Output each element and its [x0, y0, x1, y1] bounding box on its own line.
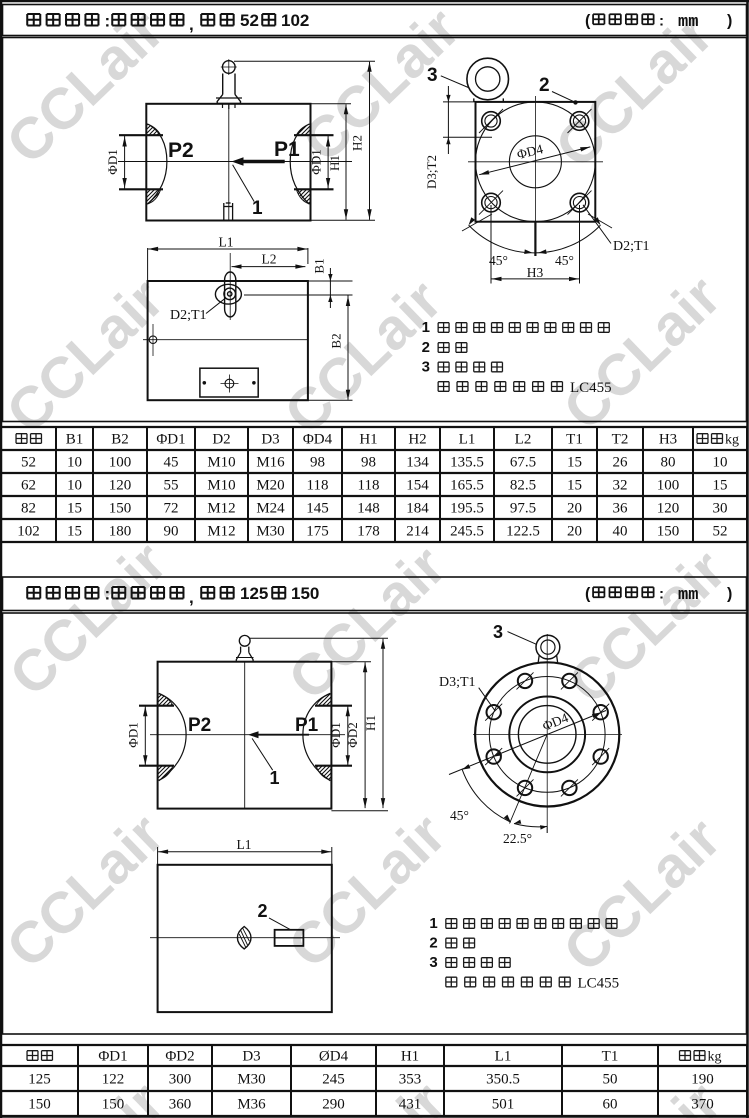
svg-text:L1: L1 — [459, 432, 476, 448]
svg-text:P1: P1 — [295, 715, 319, 736]
svg-text:P2: P2 — [168, 139, 194, 162]
svg-text:15: 15 — [67, 501, 82, 517]
svg-text:20: 20 — [567, 524, 582, 540]
svg-text:B1: B1 — [66, 432, 84, 448]
svg-text:82.5: 82.5 — [510, 478, 536, 494]
svg-text:(: ( — [585, 13, 591, 30]
svg-text:150: 150 — [291, 584, 319, 603]
svg-text:3: 3 — [429, 954, 437, 971]
svg-text:kg: kg — [708, 1050, 722, 1065]
svg-text:L1: L1 — [495, 1049, 512, 1065]
svg-text:T2: T2 — [612, 432, 629, 448]
svg-text:H1: H1 — [359, 432, 377, 448]
svg-text:350.5: 350.5 — [486, 1072, 520, 1088]
svg-text:120: 120 — [109, 478, 132, 494]
svg-text:M16: M16 — [256, 455, 285, 471]
svg-text:125: 125 — [240, 584, 268, 603]
svg-text:P2: P2 — [188, 715, 211, 736]
svg-text:135.5: 135.5 — [450, 455, 484, 471]
svg-text::: : — [659, 13, 664, 30]
svg-text:B2: B2 — [111, 432, 129, 448]
svg-text:H1: H1 — [327, 155, 342, 171]
svg-text:ΦD4: ΦD4 — [303, 432, 333, 448]
svg-text:D3: D3 — [242, 1049, 260, 1065]
svg-text::: : — [105, 585, 111, 604]
svg-text:150: 150 — [28, 1097, 51, 1113]
svg-text:67.5: 67.5 — [510, 455, 536, 471]
svg-text:15: 15 — [567, 455, 582, 471]
svg-text:H2: H2 — [408, 432, 426, 448]
svg-text:30: 30 — [713, 501, 728, 517]
svg-text:45°: 45° — [450, 808, 469, 823]
svg-text:36: 36 — [613, 501, 629, 517]
svg-text:ΦD1: ΦD1 — [156, 432, 185, 448]
svg-text:60: 60 — [603, 1097, 618, 1113]
svg-text:15: 15 — [67, 524, 82, 540]
svg-text:M10: M10 — [207, 455, 235, 471]
svg-text:80: 80 — [661, 455, 676, 471]
svg-text:175: 175 — [306, 524, 329, 540]
svg-text:M24: M24 — [256, 501, 285, 517]
svg-text:L2: L2 — [515, 432, 532, 448]
svg-text:L2: L2 — [262, 252, 277, 267]
svg-text:62: 62 — [21, 478, 36, 494]
svg-text:102: 102 — [281, 11, 309, 30]
svg-text:1: 1 — [252, 198, 263, 219]
svg-text:55: 55 — [164, 478, 179, 494]
svg-text:431: 431 — [399, 1097, 422, 1113]
svg-text:145: 145 — [306, 501, 329, 517]
svg-text:mm: mm — [678, 586, 698, 605]
svg-text:1: 1 — [422, 319, 430, 336]
svg-text:122.5: 122.5 — [506, 524, 540, 540]
svg-text:H2: H2 — [350, 135, 365, 151]
svg-text:mm: mm — [678, 13, 698, 32]
svg-text:3: 3 — [422, 359, 430, 376]
svg-text:45°: 45° — [489, 253, 508, 268]
svg-text:214: 214 — [406, 524, 429, 540]
svg-text:10: 10 — [67, 478, 82, 494]
svg-text:32: 32 — [613, 478, 628, 494]
svg-text:148: 148 — [357, 501, 380, 517]
svg-text:178: 178 — [357, 524, 380, 540]
svg-text:72: 72 — [164, 501, 179, 517]
svg-text:10: 10 — [67, 455, 82, 471]
svg-text:LC455: LC455 — [570, 380, 612, 396]
svg-text:20: 20 — [567, 501, 582, 517]
svg-text:L1: L1 — [219, 235, 234, 250]
svg-text:52: 52 — [713, 524, 728, 540]
svg-text:290: 290 — [322, 1097, 345, 1113]
svg-text:ΦD2: ΦD2 — [165, 1049, 194, 1065]
svg-text:M36: M36 — [237, 1097, 266, 1113]
svg-text:98: 98 — [310, 455, 325, 471]
svg-text:M12: M12 — [207, 501, 235, 517]
svg-text:D3;T2: D3;T2 — [424, 155, 439, 189]
svg-text:ΦD1: ΦD1 — [98, 1049, 127, 1065]
svg-text:ΦD1: ΦD1 — [126, 722, 141, 747]
svg-text:82: 82 — [21, 501, 36, 517]
svg-text:150: 150 — [657, 524, 680, 540]
svg-text:ΦD1: ΦD1 — [105, 149, 120, 174]
svg-text:100: 100 — [657, 478, 680, 494]
svg-text:H1: H1 — [363, 715, 378, 731]
svg-text:353: 353 — [399, 1072, 422, 1088]
svg-text:180: 180 — [109, 524, 132, 540]
svg-text:300: 300 — [169, 1072, 192, 1088]
svg-text:,: , — [189, 15, 194, 34]
svg-text:118: 118 — [358, 478, 380, 494]
svg-text:26: 26 — [613, 455, 629, 471]
svg-text:D3: D3 — [261, 432, 279, 448]
svg-text:52: 52 — [240, 11, 259, 30]
svg-text:,: , — [189, 588, 194, 607]
svg-text:M30: M30 — [256, 524, 284, 540]
svg-text:D2: D2 — [212, 432, 230, 448]
svg-text:D3;T1: D3;T1 — [439, 675, 476, 690]
svg-text:3: 3 — [427, 65, 438, 86]
svg-text:3: 3 — [493, 622, 503, 642]
svg-text:118: 118 — [307, 478, 329, 494]
svg-text:P1: P1 — [274, 138, 300, 161]
svg-text:1: 1 — [270, 768, 280, 788]
svg-text:H1: H1 — [401, 1049, 419, 1065]
svg-text:134: 134 — [406, 455, 429, 471]
svg-text:L1: L1 — [237, 837, 252, 852]
svg-text:360: 360 — [169, 1097, 192, 1113]
svg-text:ØD4: ØD4 — [319, 1049, 349, 1065]
svg-text:T1: T1 — [602, 1049, 619, 1065]
svg-text:1: 1 — [429, 915, 437, 932]
svg-text:501: 501 — [492, 1097, 515, 1113]
svg-text:125: 125 — [28, 1072, 51, 1088]
svg-text:2: 2 — [539, 75, 550, 96]
svg-text:ΦD1: ΦD1 — [328, 722, 343, 747]
svg-text:M20: M20 — [256, 478, 284, 494]
svg-text:195.5: 195.5 — [450, 501, 484, 517]
svg-text:150: 150 — [102, 1097, 125, 1113]
svg-text:T1: T1 — [566, 432, 583, 448]
svg-text:ΦD2: ΦD2 — [345, 722, 360, 747]
svg-text:150: 150 — [109, 501, 132, 517]
svg-text:184: 184 — [406, 501, 429, 517]
svg-text:2: 2 — [422, 339, 430, 356]
svg-text:ΦD1: ΦD1 — [309, 149, 324, 174]
svg-text:LC455: LC455 — [578, 976, 620, 992]
svg-text:15: 15 — [567, 478, 582, 494]
svg-text:(: ( — [585, 586, 591, 603]
svg-text:D2;T1: D2;T1 — [613, 239, 650, 254]
svg-text:98: 98 — [361, 455, 376, 471]
svg-text:B2: B2 — [329, 333, 344, 348]
svg-text:M10: M10 — [207, 478, 235, 494]
svg-text:D2;T1: D2;T1 — [170, 308, 207, 323]
svg-text:H3: H3 — [527, 265, 544, 280]
svg-text:45: 45 — [164, 455, 179, 471]
svg-text:45°: 45° — [555, 253, 574, 268]
svg-text:15: 15 — [713, 478, 728, 494]
svg-text:2: 2 — [429, 935, 437, 952]
svg-text:154: 154 — [406, 478, 429, 494]
svg-text:): ) — [727, 586, 732, 603]
svg-text:245.5: 245.5 — [450, 524, 484, 540]
svg-text:102: 102 — [17, 524, 40, 540]
svg-text:M12: M12 — [207, 524, 235, 540]
svg-text:245: 245 — [322, 1072, 345, 1088]
svg-text::: : — [105, 12, 111, 31]
svg-text:M30: M30 — [237, 1072, 265, 1088]
svg-text::: : — [659, 586, 664, 603]
svg-text:22.5°: 22.5° — [503, 831, 532, 846]
svg-text:122: 122 — [102, 1072, 125, 1088]
svg-text:165.5: 165.5 — [450, 478, 484, 494]
svg-text:50: 50 — [603, 1072, 618, 1088]
svg-text:10: 10 — [713, 455, 728, 471]
svg-text:370: 370 — [691, 1097, 714, 1113]
svg-text:90: 90 — [164, 524, 179, 540]
svg-text:190: 190 — [691, 1072, 714, 1088]
svg-text:52: 52 — [21, 455, 36, 471]
svg-text:40: 40 — [613, 524, 628, 540]
svg-text:H3: H3 — [659, 432, 677, 448]
svg-text:120: 120 — [657, 501, 680, 517]
svg-text:2: 2 — [258, 901, 268, 921]
svg-text:B1: B1 — [312, 258, 327, 273]
svg-text:kg: kg — [725, 433, 739, 448]
svg-text:97.5: 97.5 — [510, 501, 536, 517]
svg-text:100: 100 — [109, 455, 132, 471]
svg-text:): ) — [727, 13, 732, 30]
